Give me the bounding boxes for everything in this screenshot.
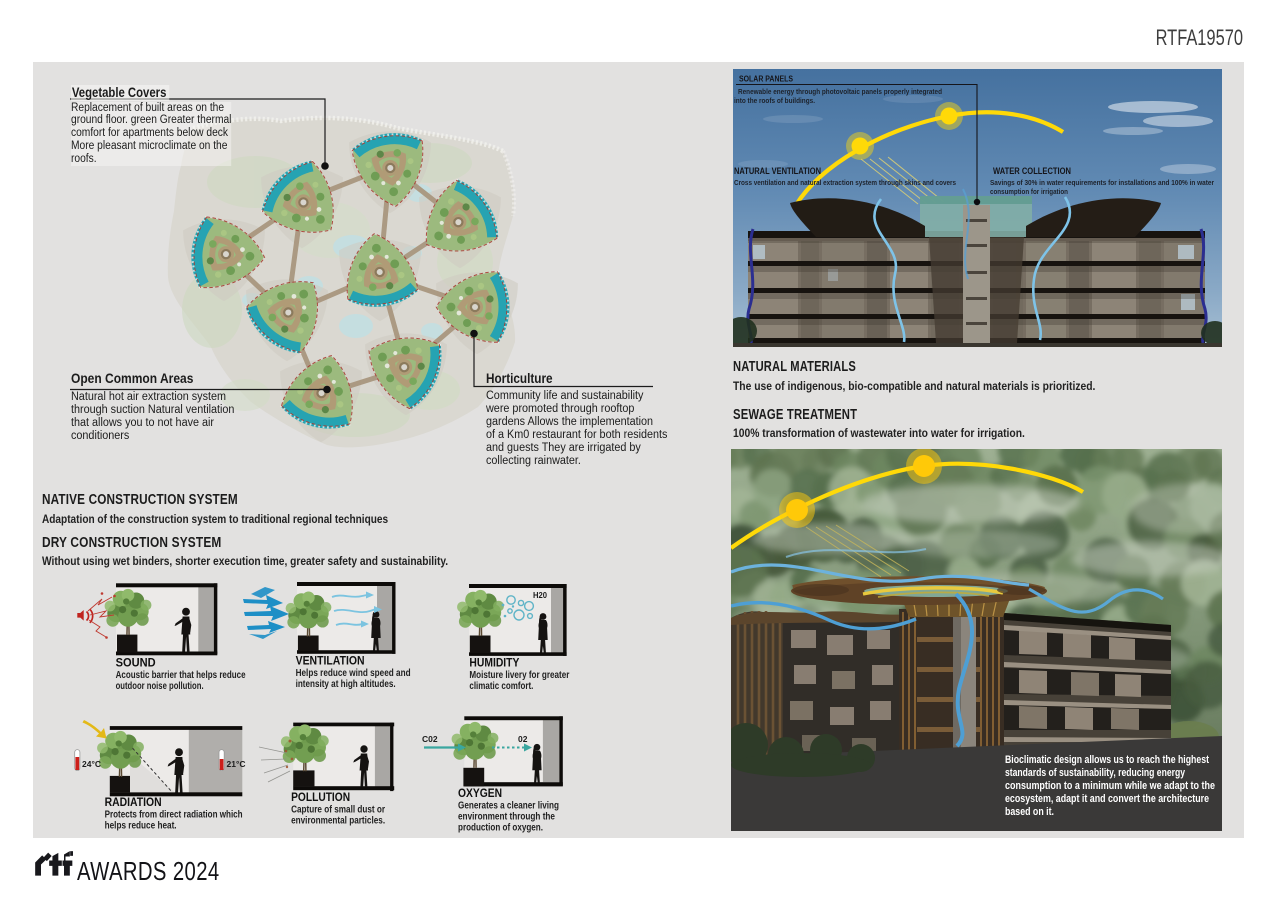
svg-text:Bioclimatic design allows us t: Bioclimatic design allows us to reach th… <box>1005 754 1209 766</box>
svg-text:OXYGEN: OXYGEN <box>458 788 502 800</box>
svg-text:POLLUTION: POLLUTION <box>291 792 350 804</box>
svg-text:production of oxygen.: production of oxygen. <box>458 823 543 834</box>
svg-text:based on it.: based on it. <box>1005 806 1054 818</box>
svg-text:RADIATION: RADIATION <box>105 797 162 809</box>
svg-text:Cross ventilation and natural: Cross ventilation and natural extraction… <box>734 178 956 187</box>
svg-text:outdoor noise pollution.: outdoor noise pollution. <box>116 681 204 692</box>
svg-text:Protects from direct radiation: Protects from direct radiation which <box>105 810 243 821</box>
svg-text:HUMIDITY: HUMIDITY <box>469 658 519 670</box>
svg-text:intensity at high altitudes.: intensity at high altitudes. <box>296 679 396 690</box>
svg-text:H20: H20 <box>533 590 547 600</box>
svg-text:SOLAR PANELS: SOLAR PANELS <box>739 74 793 84</box>
svg-text:standards of sustainability, r: standards of sustainability, reducing en… <box>1005 767 1185 779</box>
svg-text:Capture of small dust or: Capture of small dust or <box>291 805 385 816</box>
svg-text:into the roofs of buildings.: into the roofs of buildings. <box>734 96 815 105</box>
svg-text:NATURAL VENTILATION: NATURAL VENTILATION <box>734 166 821 176</box>
svg-text:VENTILATION: VENTILATION <box>296 656 365 668</box>
svg-text:Generates a cleaner living: Generates a cleaner living <box>458 801 559 812</box>
svg-text:C02: C02 <box>422 734 438 744</box>
svg-text:02: 02 <box>518 734 528 744</box>
svg-text:Helps reduce wind speed and: Helps reduce wind speed and <box>296 668 411 679</box>
svg-text:Moisture livery for greater: Moisture livery for greater <box>469 670 569 681</box>
svg-text:helps reduce heat.: helps reduce heat. <box>105 821 177 832</box>
svg-text:Acoustic barrier that helps re: Acoustic barrier that helps reduce <box>116 670 246 681</box>
svg-text:environmental particles.: environmental particles. <box>291 816 385 827</box>
svg-text:Savings of 30% in water requir: Savings of 30% in water requirements for… <box>990 178 1214 187</box>
svg-text:climatic comfort.: climatic comfort. <box>469 681 533 692</box>
svg-text:24°C: 24°C <box>82 759 101 769</box>
svg-text:Renewable energy through photo: Renewable energy through photovoltaic pa… <box>738 87 942 96</box>
svg-text:environment through the: environment through the <box>458 812 555 823</box>
svg-text:consumption to a minimum while: consumption to a minimum while we adapt … <box>1005 780 1215 792</box>
svg-text:ecosystem, adapt it and conver: ecosystem, adapt it and convert the arch… <box>1005 793 1209 805</box>
svg-text:consumption for irrigation: consumption for irrigation <box>990 187 1068 196</box>
svg-text:WATER COLLECTION: WATER COLLECTION <box>993 166 1071 176</box>
svg-text:SOUND: SOUND <box>116 658 156 670</box>
svg-text:21°C: 21°C <box>227 759 246 769</box>
